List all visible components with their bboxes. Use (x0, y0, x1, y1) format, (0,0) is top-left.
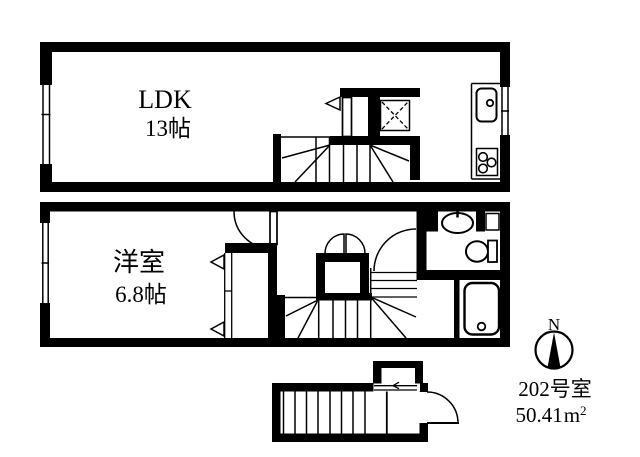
folding-door-arrow-icon (211, 322, 224, 336)
folding-door-arrow-icon (211, 255, 224, 269)
lower-room-name: 洋室 (113, 248, 165, 277)
lower-bottom-wall (40, 338, 510, 347)
washroom-toilet-area (374, 211, 499, 281)
entrance-stairs (272, 361, 459, 442)
bathroom-area (417, 270, 511, 338)
lower-left-window-icon (42, 223, 50, 303)
upper-top-wall (40, 42, 510, 52)
upper-left-wall-seg2 (40, 164, 52, 192)
kitchen-area (472, 84, 501, 180)
lower-top-wall (40, 202, 510, 212)
unit-labels: 202号室 50.41m2 (515, 377, 591, 427)
stair-direction-arrow-icon (326, 97, 340, 110)
lower-left-wall-seg1 (40, 202, 50, 223)
kitchen-window-icon (501, 87, 509, 135)
upper-floor-plan: LDK 13帖 (40, 42, 510, 192)
unit-room-number: 202号室 (518, 377, 592, 401)
upper-room-name: LDK (138, 85, 192, 114)
storage-double-doors (316, 234, 369, 300)
upper-right-wall-seg2 (500, 135, 510, 192)
floorplan: LDK 13帖 (0, 0, 640, 457)
unit-area: 50.41m2 (515, 403, 586, 427)
washroom-door-swing-icon (374, 229, 416, 271)
upper-right-wall-seg1 (500, 42, 510, 87)
stove-icon (477, 149, 498, 176)
upper-bottom-wall (40, 182, 510, 192)
hatch-dashed-x-icon (381, 101, 410, 131)
bathtub-icon (465, 283, 500, 335)
upper-left-window-icon (42, 85, 51, 164)
floorplan-page: LDK 13帖 (0, 0, 640, 457)
lower-staircase (277, 268, 417, 338)
upper-staircase (273, 88, 420, 182)
lower-room-size: 6.8帖 (115, 282, 167, 307)
toilet-icon (466, 241, 497, 263)
lower-stair-treads (286, 268, 417, 338)
upper-left-wall-seg1 (40, 42, 52, 85)
room-door-swing-icon (234, 212, 277, 249)
door-petal-right-icon (346, 234, 365, 254)
upper-room-size: 13帖 (145, 116, 191, 141)
closet (211, 243, 277, 338)
wash-basin-icon (442, 211, 473, 234)
door-petal-left-icon (325, 234, 344, 254)
kitchen-sink-icon (477, 89, 497, 122)
lower-floor-plan: 洋室 6.8帖 (40, 202, 510, 347)
compass-icon: N (536, 315, 573, 369)
compass-north-label: N (548, 315, 560, 334)
entrance-door-swing-icon (427, 392, 459, 423)
shelf-box (486, 214, 499, 231)
stair-door-leaf (343, 98, 352, 137)
lower-left-wall-seg2 (40, 303, 50, 347)
